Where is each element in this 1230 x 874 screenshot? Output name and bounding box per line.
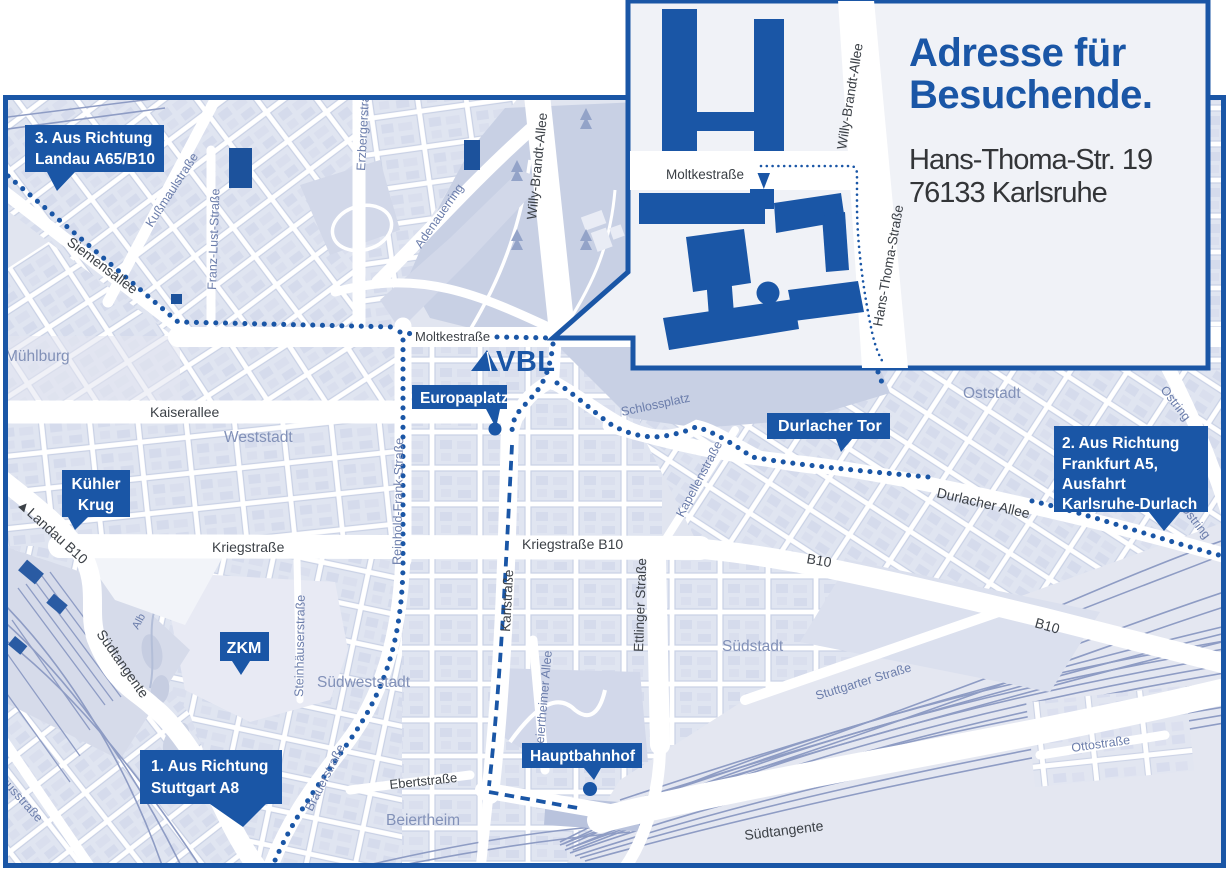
svg-text:Oststadt: Oststadt <box>963 385 1021 402</box>
svg-text:Mühlburg: Mühlburg <box>5 348 70 365</box>
svg-text:Frankfurt A5,: Frankfurt A5, <box>1062 456 1158 473</box>
svg-text:Durlacher Tor: Durlacher Tor <box>778 418 882 435</box>
svg-text:Südweststadt: Südweststadt <box>317 674 411 691</box>
svg-text:Südstadt: Südstadt <box>722 638 784 655</box>
svg-text:Landau A65/B10: Landau A65/B10 <box>35 151 155 168</box>
svg-text:Krug: Krug <box>78 497 114 514</box>
svg-text:Ausfahrt: Ausfahrt <box>1062 476 1126 493</box>
svg-text:1. Aus Richtung: 1. Aus Richtung <box>151 758 268 775</box>
svg-text:Hans-Thoma-Str. 19: Hans-Thoma-Str. 19 <box>909 144 1152 176</box>
svg-text:Kriegstraße B10: Kriegstraße B10 <box>522 536 623 552</box>
svg-text:Besuchende.: Besuchende. <box>909 73 1152 117</box>
svg-text:Reinhold-Frank-Straße: Reinhold-Frank-Straße <box>390 438 406 565</box>
svg-text:Moltkestraße: Moltkestraße <box>415 329 490 344</box>
svg-text:2. Aus Richtung: 2. Aus Richtung <box>1062 435 1179 452</box>
svg-text:3. Aus Richtung: 3. Aus Richtung <box>35 130 152 147</box>
svg-text:Kaiserallee: Kaiserallee <box>150 404 219 420</box>
svg-text:Stuttgart A8: Stuttgart A8 <box>151 780 239 797</box>
svg-text:Beiertheim: Beiertheim <box>386 812 460 829</box>
svg-text:Kriegstraße: Kriegstraße <box>212 539 285 555</box>
svg-text:VBL: VBL <box>496 346 556 378</box>
svg-text:Karlsruhe-Durlach: Karlsruhe-Durlach <box>1062 496 1197 513</box>
svg-text:76133 Karlsruhe: 76133 Karlsruhe <box>909 177 1107 209</box>
svg-text:Adresse für: Adresse für <box>909 31 1126 75</box>
svg-text:Weststadt: Weststadt <box>224 429 293 446</box>
svg-text:Kühler: Kühler <box>71 476 120 493</box>
svg-text:Steinhäuserstraße: Steinhäuserstraße <box>292 595 308 697</box>
svg-text:Hauptbahnhof: Hauptbahnhof <box>530 748 636 765</box>
svg-text:Moltkestraße: Moltkestraße <box>666 167 744 182</box>
svg-text:ZKM: ZKM <box>227 640 262 657</box>
svg-text:Europaplatz: Europaplatz <box>420 390 509 407</box>
